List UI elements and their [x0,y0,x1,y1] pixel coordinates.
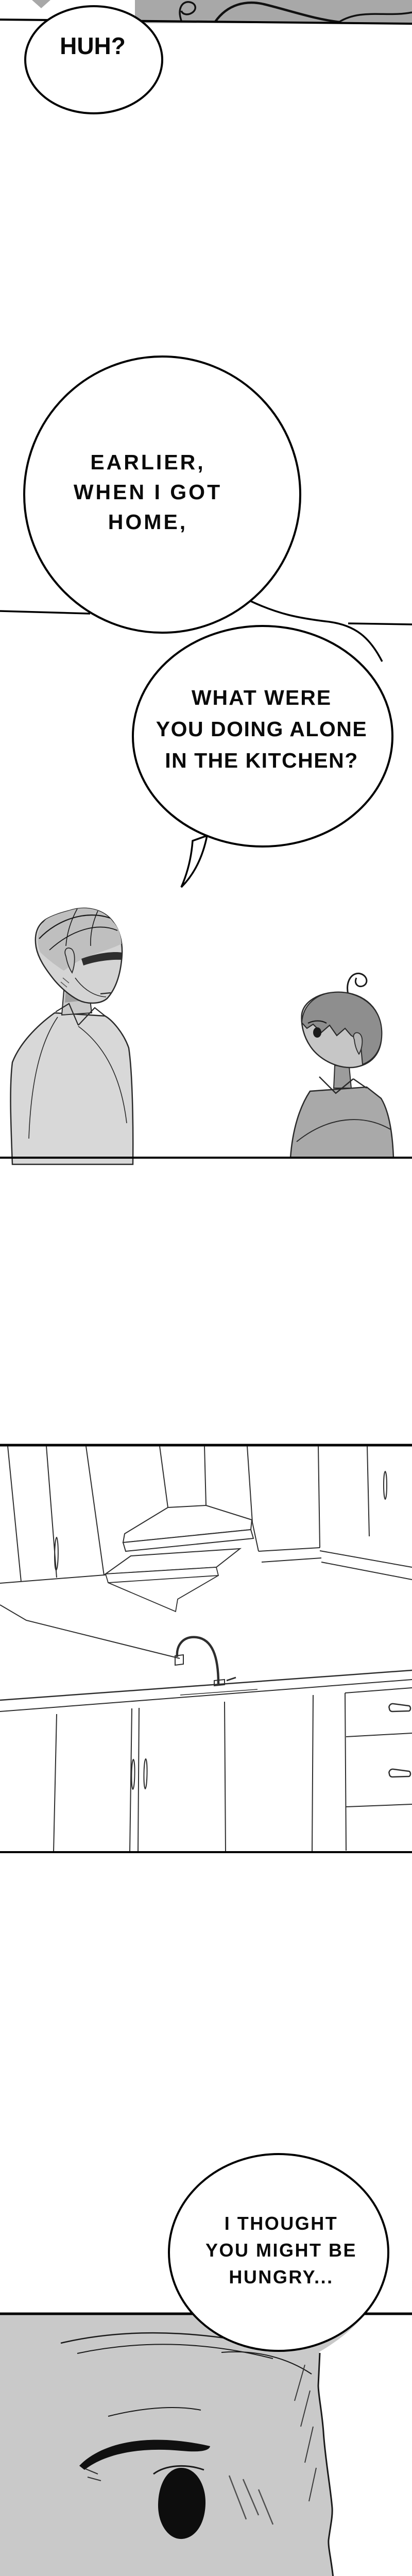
svg-text:WHEN I GOT: WHEN I GOT [74,480,222,504]
svg-text:IN THE KITCHEN?: IN THE KITCHEN? [165,749,358,772]
svg-text:HUNGRY...: HUNGRY... [229,2266,333,2287]
svg-text:I THOUGHT: I THOUGHT [225,2213,338,2234]
svg-text:HUH?: HUH? [60,32,126,59]
svg-text:YOU DOING ALONE: YOU DOING ALONE [156,717,368,741]
svg-text:EARLIER,: EARLIER, [90,450,205,474]
svg-text:WHAT WERE: WHAT WERE [192,686,332,709]
svg-text:YOU MIGHT BE: YOU MIGHT BE [205,2240,357,2261]
svg-text:HOME,: HOME, [108,510,187,534]
